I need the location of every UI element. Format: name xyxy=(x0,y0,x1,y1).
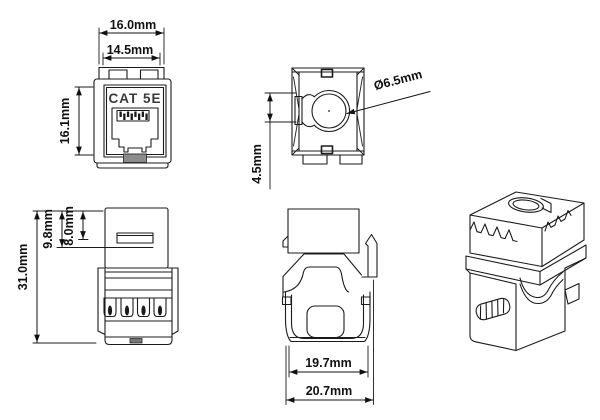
upper-right-face xyxy=(542,203,584,267)
spring-arch xyxy=(520,272,563,304)
key-notch xyxy=(124,154,147,163)
foot-left xyxy=(303,155,327,164)
inner-cavity xyxy=(307,306,344,338)
bottom-key xyxy=(130,339,142,344)
label-slot xyxy=(474,297,511,322)
dim-front-outer-width: 16.0mm xyxy=(110,18,157,32)
dim-front-height: 16.1mm xyxy=(58,98,72,145)
hole-notch xyxy=(541,199,551,213)
extension-lines xyxy=(75,87,93,155)
top-tab-left xyxy=(109,70,127,79)
back-housing xyxy=(105,208,168,268)
technical-drawing: 16.0mm 14.5mm 16.1mm CAT 5E Ø6.5mm xyxy=(0,0,600,420)
dim-top-offset: 4.5mm xyxy=(250,144,264,184)
foot-right xyxy=(340,155,362,164)
top-tab-right xyxy=(141,70,159,79)
part-label: CAT 5E xyxy=(108,91,161,106)
idc-contact xyxy=(141,306,145,316)
idc-teeth-right xyxy=(545,211,571,232)
shoulder-band xyxy=(283,254,362,297)
isometric-view xyxy=(466,192,586,351)
idc-contact xyxy=(108,306,112,316)
foot-right xyxy=(362,297,371,305)
dim-rear-body-width: 19.7mm xyxy=(305,356,352,370)
dim-front-inner-width: 14.5mm xyxy=(107,43,154,57)
body-edges xyxy=(105,268,172,337)
collar xyxy=(466,245,586,285)
label-slot-ribs xyxy=(477,298,508,320)
foot-left xyxy=(283,297,292,305)
dim-side-window-height: 8.0mm xyxy=(62,206,76,246)
u-channel xyxy=(292,295,364,339)
idc-contact xyxy=(125,306,129,316)
latch-flap xyxy=(565,284,579,305)
left-barb xyxy=(283,236,288,247)
dim-side-overall-height: 31.0mm xyxy=(16,244,30,291)
idc-teeth-left xyxy=(470,222,517,242)
bezel-lip xyxy=(97,163,168,168)
rear-view: 19.7mm 20.7mm xyxy=(283,209,378,405)
idc-contact xyxy=(158,306,162,316)
dim-side-back-height: 9.8mm xyxy=(41,209,55,249)
front-view: 16.0mm 14.5mm 16.1mm CAT 5E xyxy=(58,18,171,168)
dim-rear-overall-width: 20.7mm xyxy=(306,384,353,398)
dim-hole-diameter: Ø6.5mm xyxy=(372,67,423,93)
top-view: Ø6.5mm 4.5mm xyxy=(250,67,430,189)
spring-arch xyxy=(284,267,349,292)
mounting-tab-top xyxy=(322,70,333,78)
side-view: 31.0mm 9.8mm 8.0mm xyxy=(16,206,178,344)
idc-comb xyxy=(104,298,166,317)
mounting-tab-bottom xyxy=(322,146,333,154)
back-block xyxy=(288,209,359,253)
technical-drawing-page: 16.0mm 14.5mm 16.1mm CAT 5E Ø6.5mm xyxy=(0,0,600,420)
center-mark xyxy=(328,110,330,112)
latch xyxy=(362,235,377,278)
rear-window xyxy=(117,233,153,243)
lower-body xyxy=(286,292,371,342)
rj45-contacts xyxy=(120,112,148,121)
